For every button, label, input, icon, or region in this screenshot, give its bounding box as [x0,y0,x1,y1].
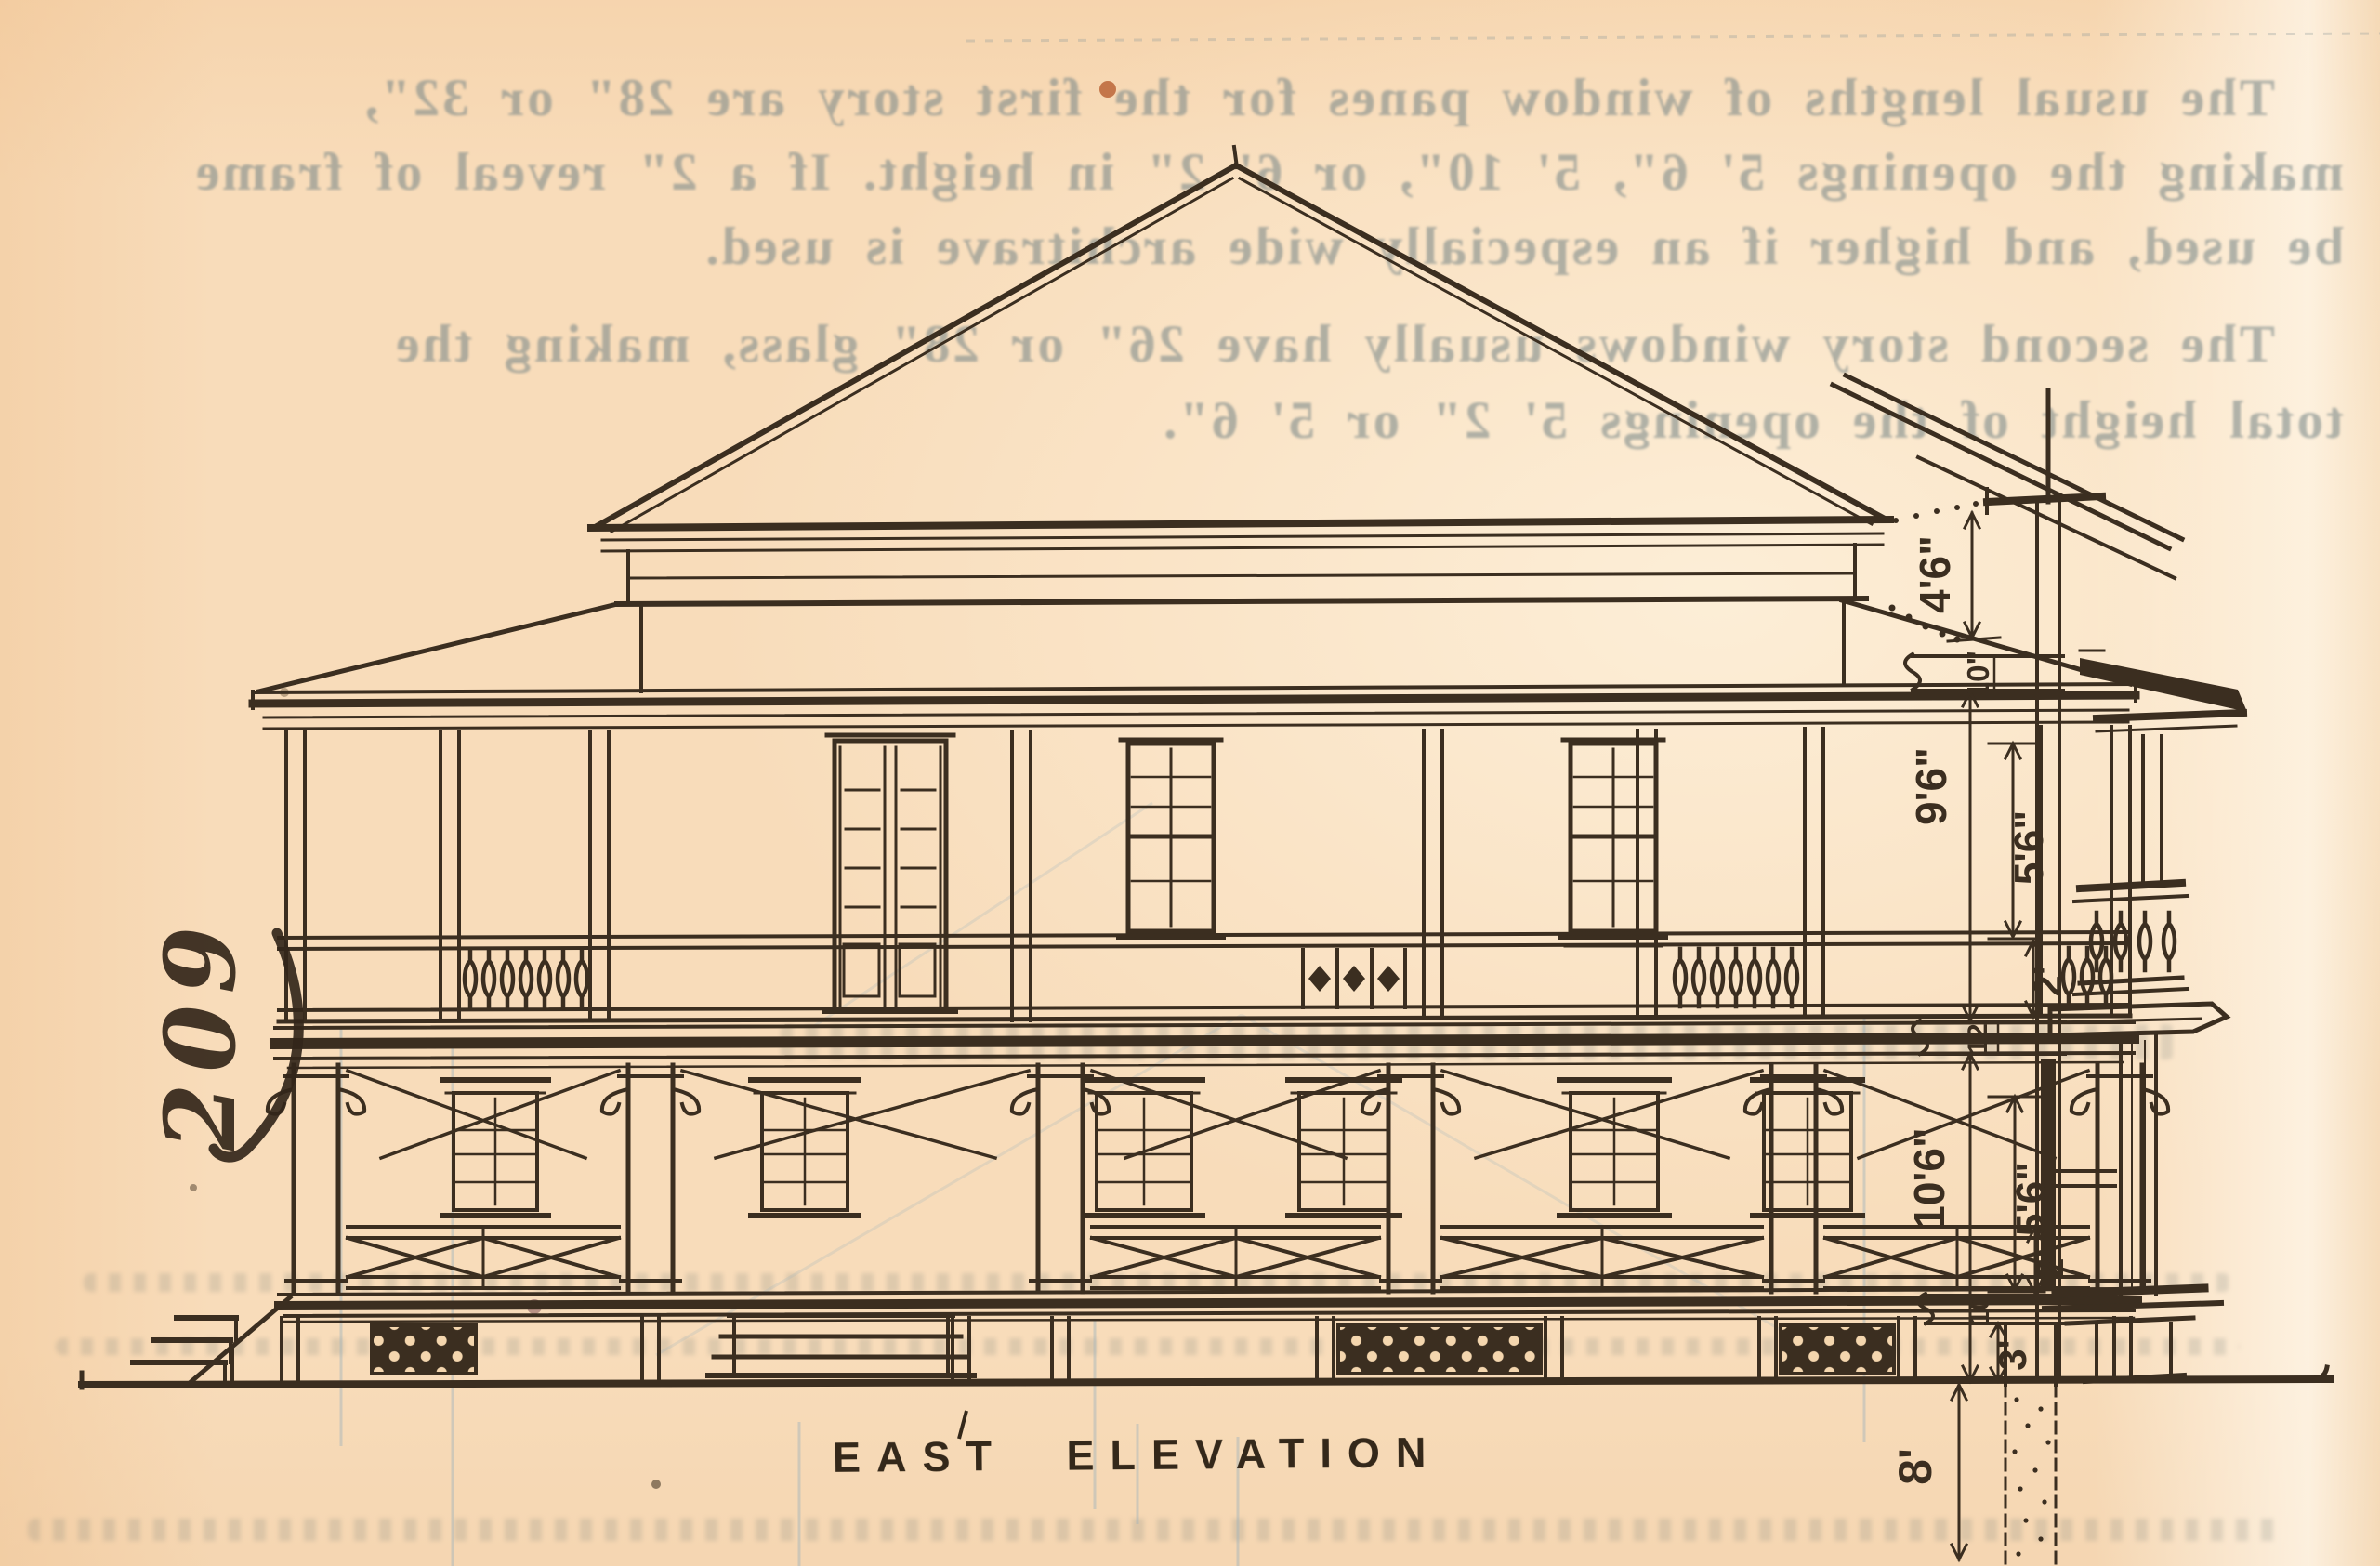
dimension-label: 3' [1991,1339,2034,1370]
figure-number-text: 209 [143,915,257,1151]
dimension-label: 2' [2028,1248,2071,1279]
french-door [825,735,955,1011]
main-roof [591,147,1890,551]
lattice-panels [372,1325,1894,1374]
sawn-balusters [1303,950,1405,1007]
dimension-label: 8' [1889,1448,1941,1485]
dimension-label: 9'6" [1907,747,1955,825]
window [751,1080,859,1216]
dimension-label: 5'6" [2008,1162,2054,1236]
upper-porch-roof [253,600,2136,729]
turned-balusters [465,948,2111,1007]
second-story-posts [286,727,2130,1020]
dimension-label: 10'6" [1905,1127,1953,1230]
second-story-window [1561,740,1665,946]
center-steps [708,1316,974,1375]
porch-floor-and-skirt [279,1289,2137,1381]
dimension-label: 4'6" [1911,535,1959,613]
handwritten-figure-number: 209 [143,915,298,1157]
window [442,1080,548,1216]
dimension-label: 5'6" [2006,810,2052,885]
scanned-drawing-page: The usual lengths of window panes for th… [0,0,2380,1566]
dimension-label: 10 [1965,1295,1995,1325]
dimension-label: 10" [1961,651,1995,699]
attic-band [617,545,1866,691]
dimension-label: 2' [2026,966,2070,996]
window [1559,1080,1669,1216]
elevation-drawing: 4'6" 10" 9'6" 5'6" 2' 12 10'6" 5'6" 2' 1… [0,0,2380,1566]
porch-x-railing [348,1227,2088,1288]
left-steps [133,1297,290,1383]
second-story-window [1119,740,1223,946]
second-floor-band [275,1022,2134,1068]
window [1288,1080,1400,1216]
dimension-label: 12 [1963,1023,1993,1054]
wall-section: 4'6" 10" 9'6" 5'6" 2' 12 10'6" 5'6" 2' 1… [1833,375,2247,1566]
drawing-caption: EAST ELEVATION [833,1428,1442,1482]
window [1085,1080,1203,1216]
paper-stains [190,81,1116,1489]
house-elevation [82,147,2331,1388]
balcony-balustrade [279,932,2130,1021]
